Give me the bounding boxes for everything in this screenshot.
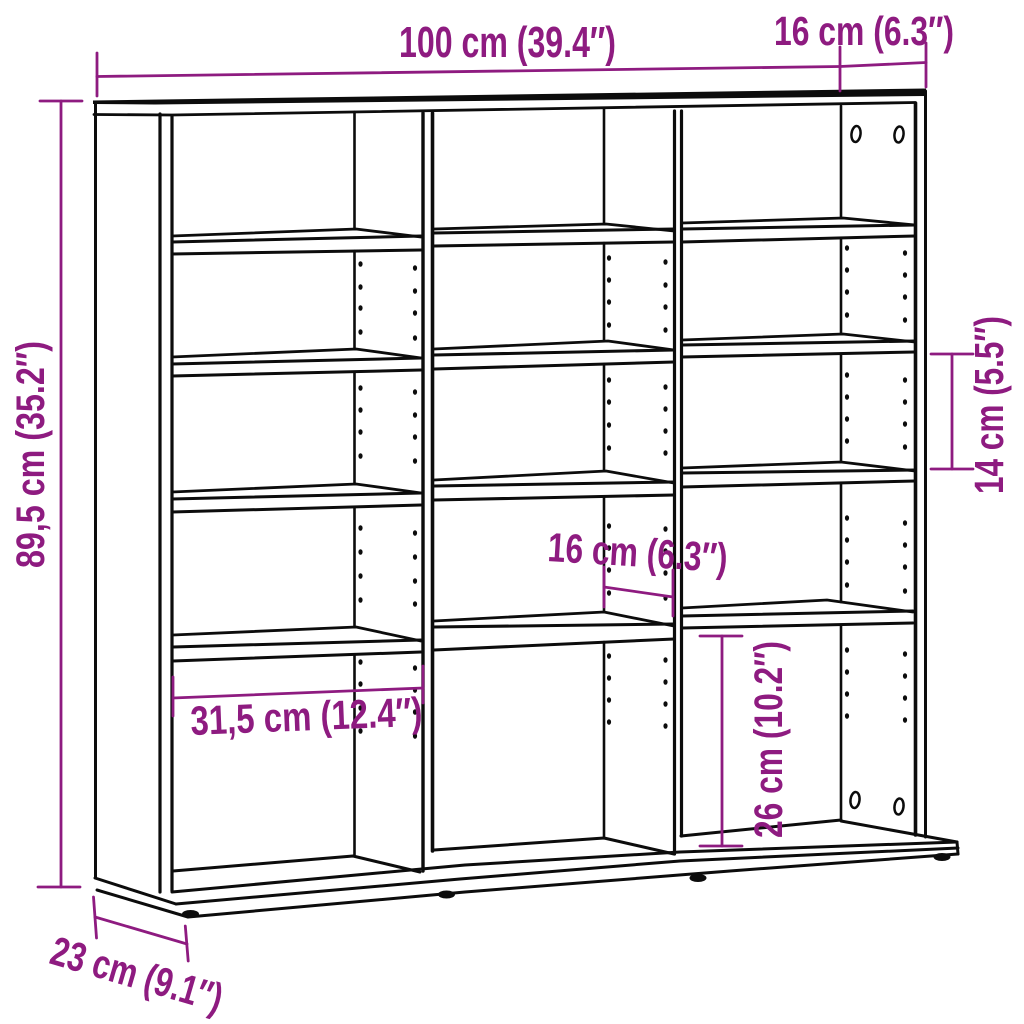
svg-text:23 cm (9.1″): 23 cm (9.1″)	[45, 927, 228, 1021]
svg-text:14 cm (5.5″): 14 cm (5.5″)	[966, 316, 1012, 494]
svg-text:31,5 cm (12.4″): 31,5 cm (12.4″)	[190, 689, 424, 744]
svg-text:16 cm (6.3″): 16 cm (6.3″)	[546, 524, 728, 581]
svg-text:89,5 cm (35.2″): 89,5 cm (35.2″)	[9, 341, 53, 568]
svg-text:16 cm (6.3″): 16 cm (6.3″)	[774, 8, 954, 54]
svg-text:26 cm (10.2″): 26 cm (10.2″)	[747, 641, 791, 838]
svg-text:100 cm (39.4″): 100 cm (39.4″)	[399, 18, 616, 67]
